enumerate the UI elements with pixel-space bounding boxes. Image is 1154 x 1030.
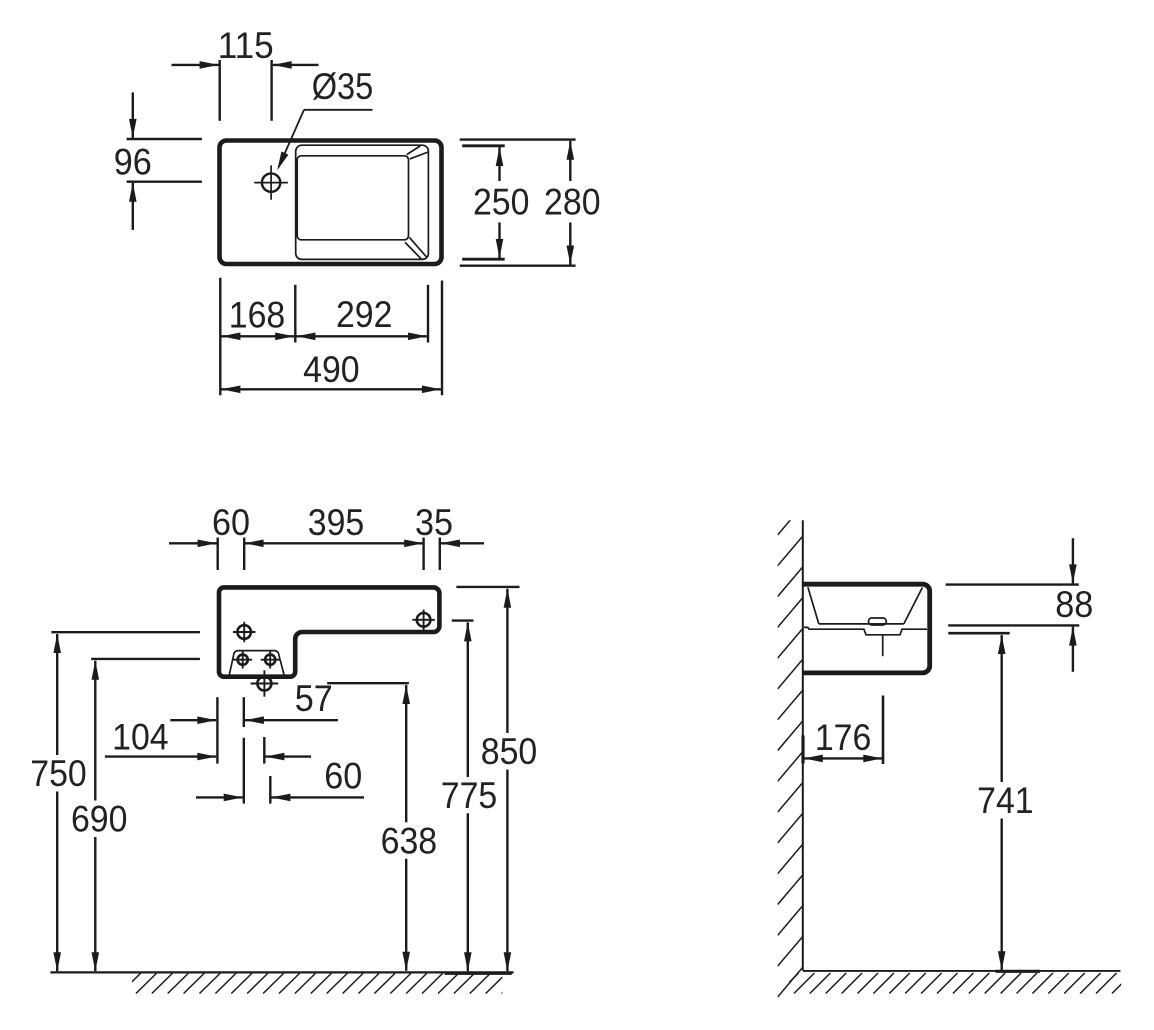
svg-text:775: 775 xyxy=(441,775,498,816)
svg-text:57: 57 xyxy=(295,678,333,719)
svg-text:750: 750 xyxy=(30,753,87,794)
svg-text:250: 250 xyxy=(473,182,530,223)
svg-text:850: 850 xyxy=(481,731,538,772)
svg-text:96: 96 xyxy=(114,141,152,182)
svg-text:88: 88 xyxy=(1055,584,1093,625)
svg-text:690: 690 xyxy=(71,799,128,840)
svg-text:176: 176 xyxy=(815,717,872,758)
svg-text:Ø35: Ø35 xyxy=(312,66,374,107)
svg-text:292: 292 xyxy=(336,294,393,335)
svg-text:168: 168 xyxy=(229,294,286,335)
svg-text:104: 104 xyxy=(112,716,169,757)
svg-text:395: 395 xyxy=(308,502,365,543)
svg-text:490: 490 xyxy=(303,349,360,390)
svg-text:638: 638 xyxy=(381,820,438,861)
svg-text:60: 60 xyxy=(212,502,250,543)
svg-text:741: 741 xyxy=(977,780,1034,821)
svg-text:115: 115 xyxy=(218,25,274,66)
svg-text:35: 35 xyxy=(415,502,453,543)
svg-text:60: 60 xyxy=(324,756,362,797)
svg-text:280: 280 xyxy=(544,182,601,223)
